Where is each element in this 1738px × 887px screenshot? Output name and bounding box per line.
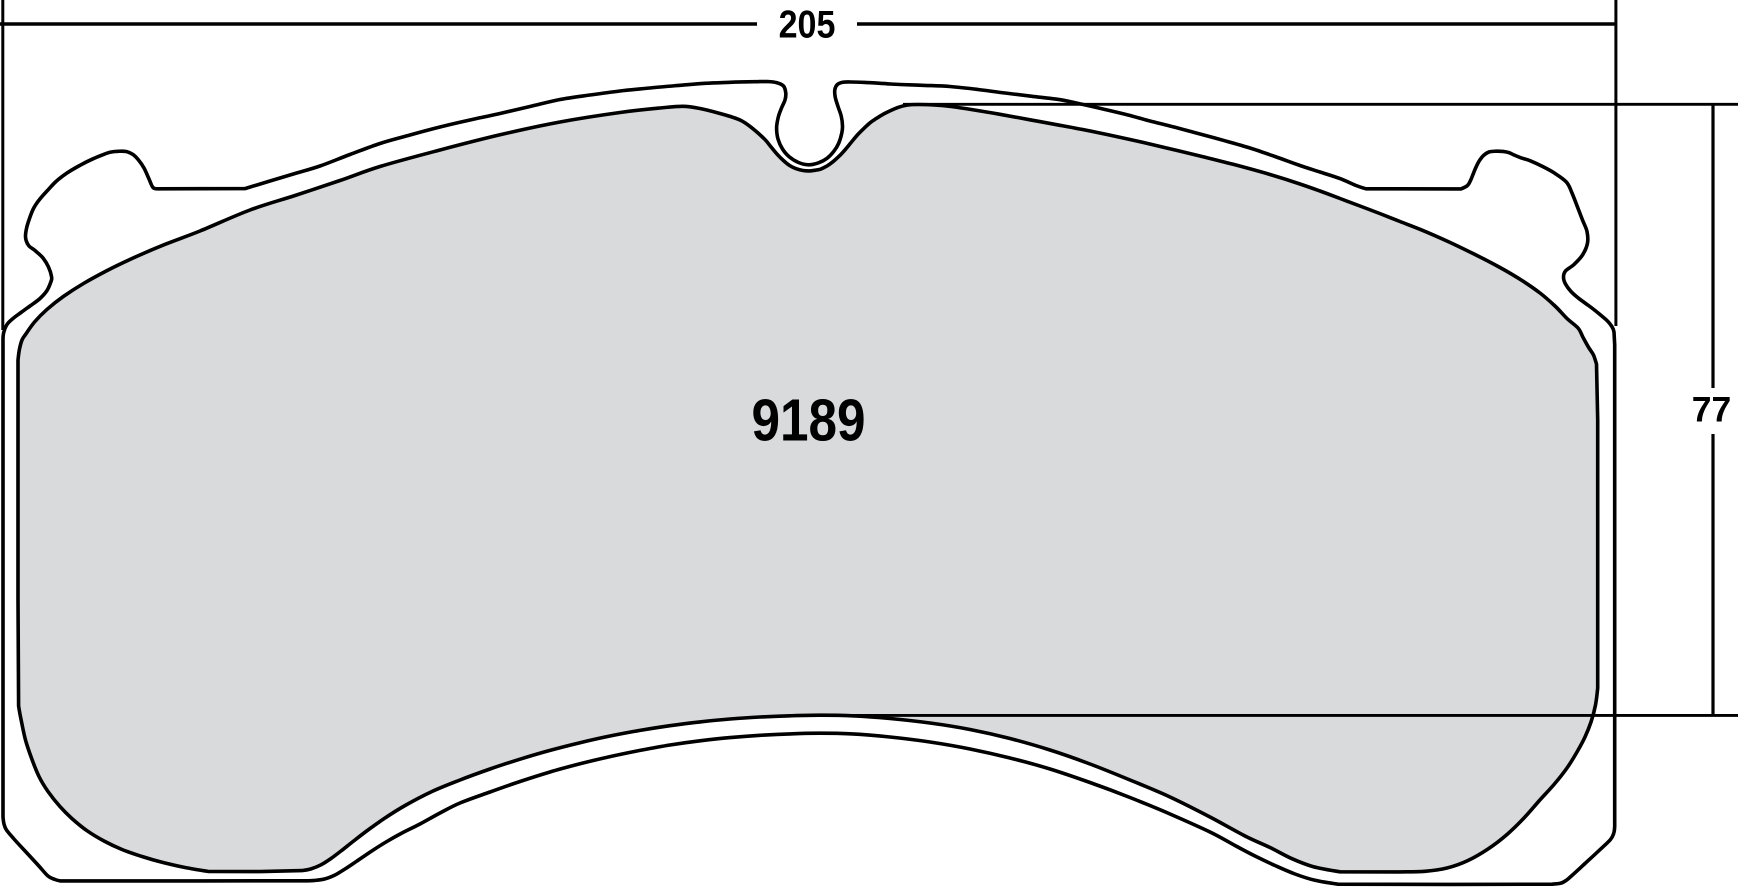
svg-text:77: 77 [1692, 389, 1732, 429]
svg-text:9189: 9189 [751, 387, 865, 453]
svg-text:205: 205 [779, 2, 836, 45]
